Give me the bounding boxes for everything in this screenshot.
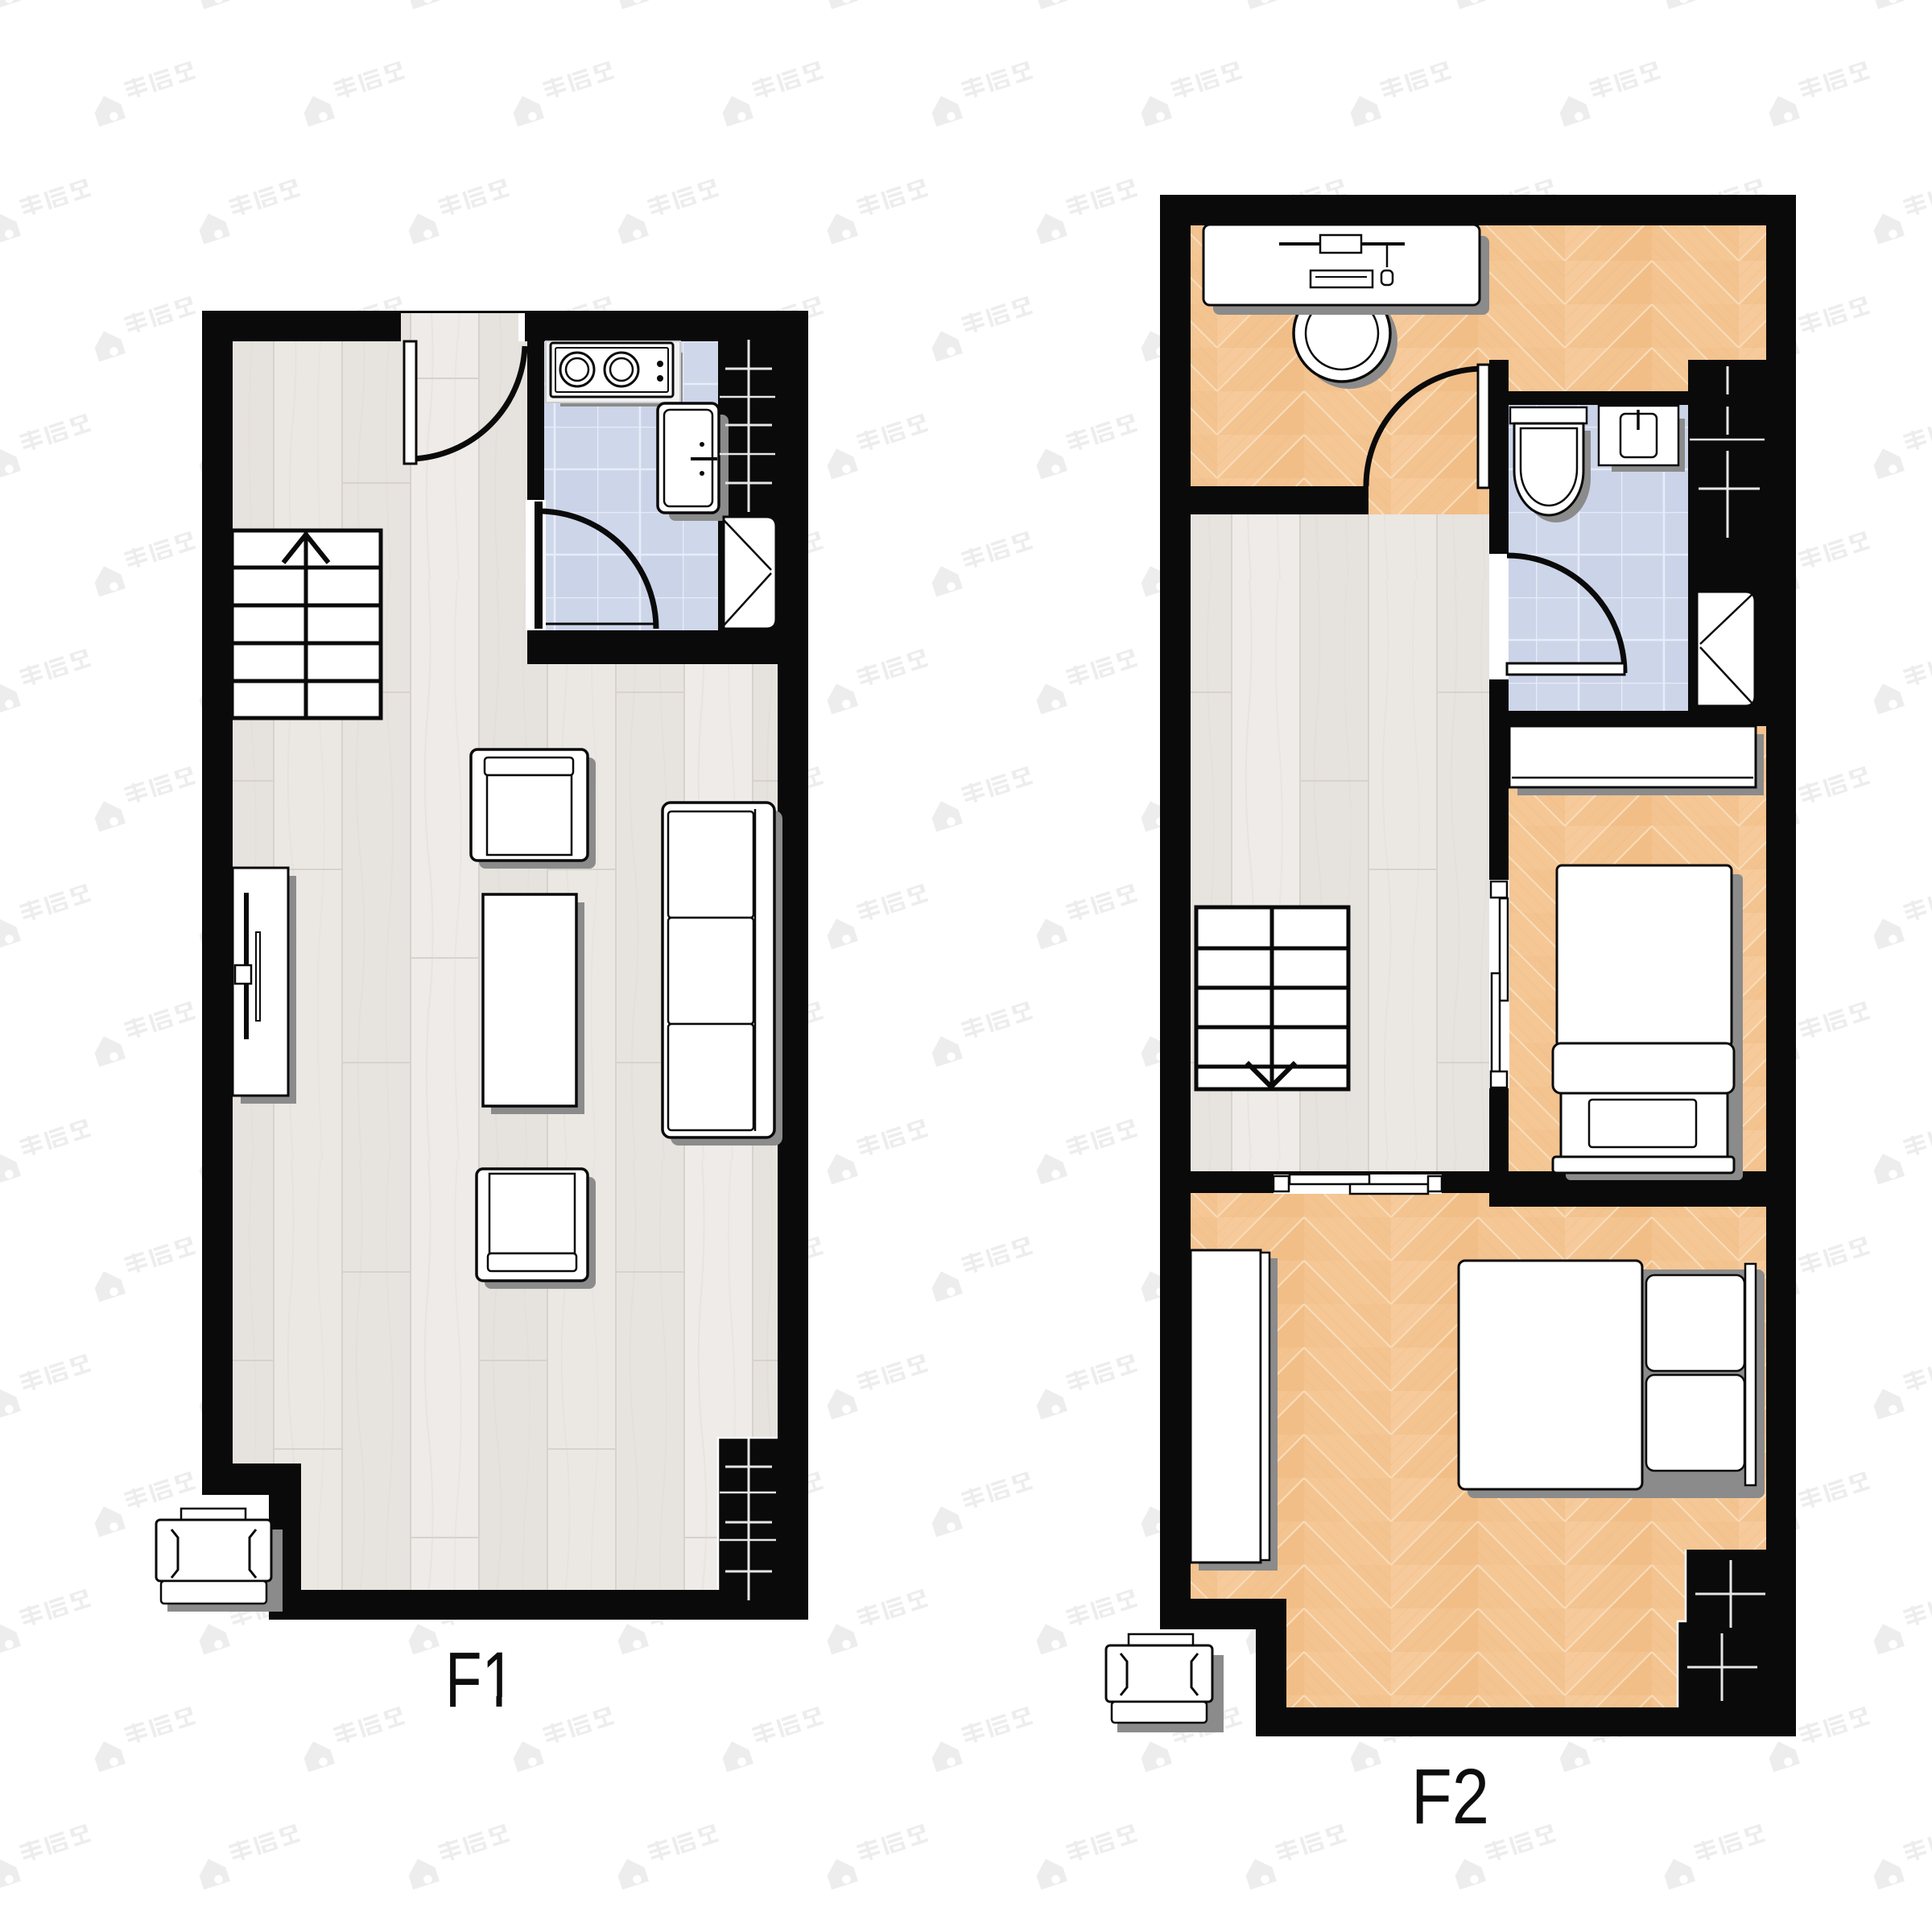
svg-text:F2: F2 <box>1411 1752 1489 1840</box>
svg-text:F1: F1 <box>445 1636 515 1724</box>
